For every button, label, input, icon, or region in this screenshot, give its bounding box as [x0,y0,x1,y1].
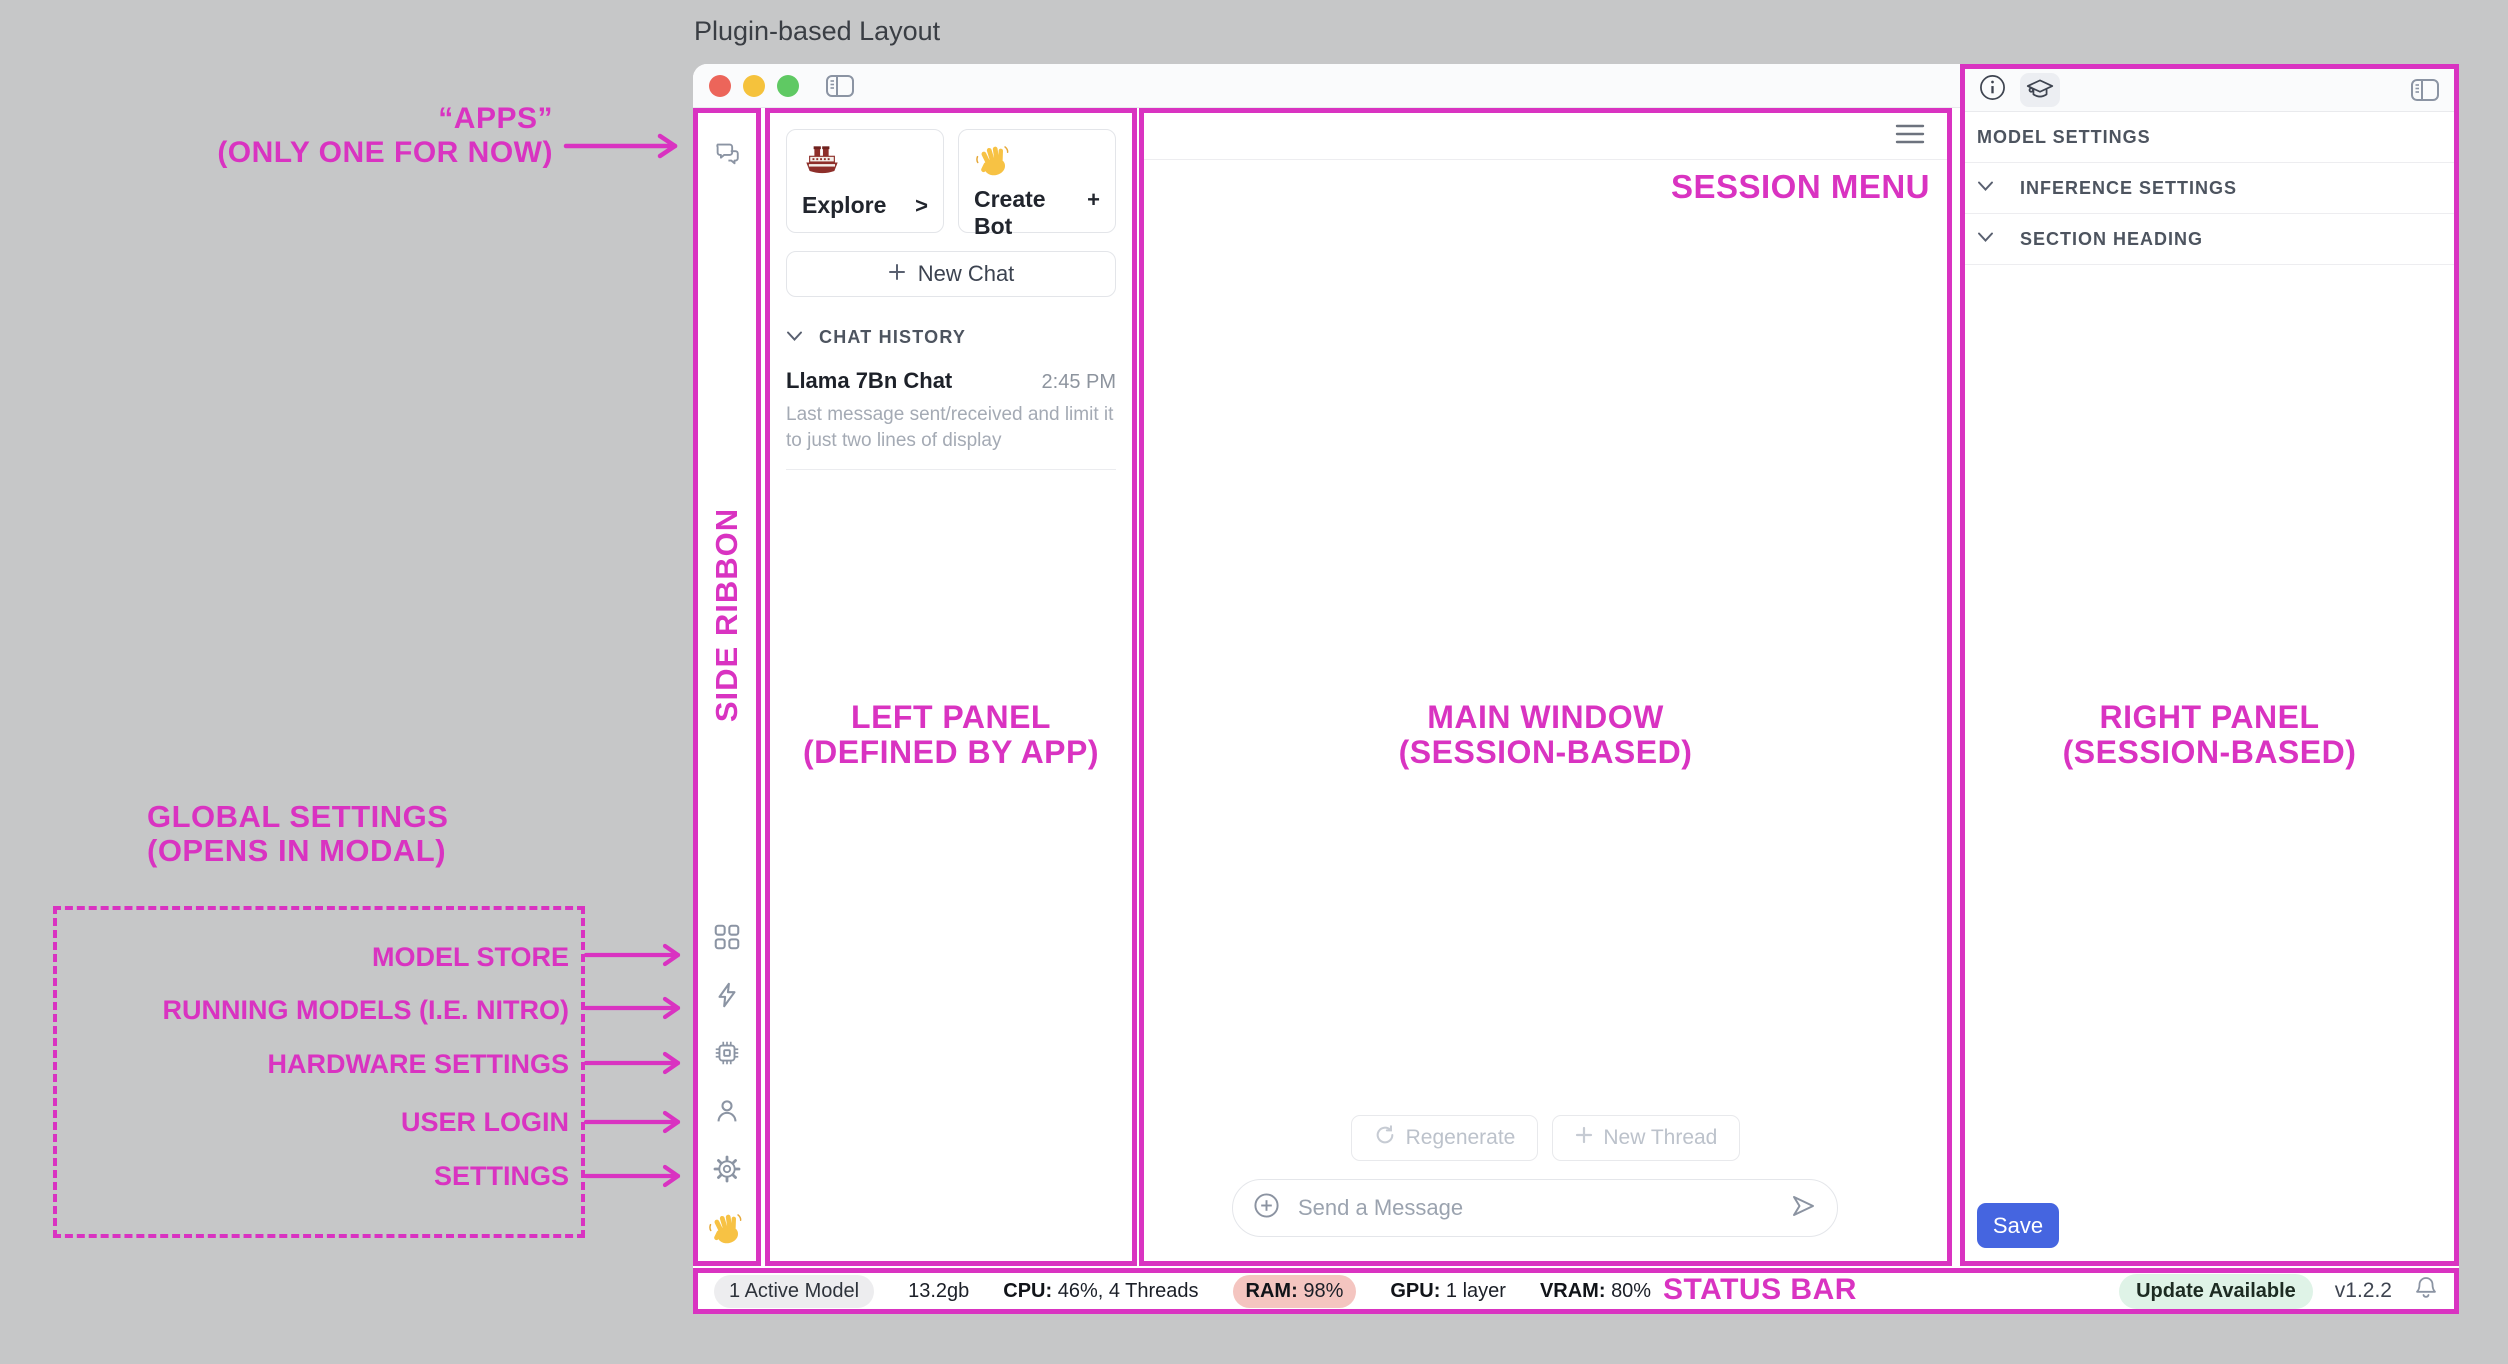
create-bot-card[interactable]: Create Bot + [958,129,1116,233]
chevron-down-icon [1977,230,1994,248]
bell-icon[interactable] [2414,1275,2438,1307]
chat-app-icon[interactable] [711,137,743,169]
explore-card[interactable]: Explore > [786,129,944,233]
explore-card-label: Explore [802,192,886,219]
create-bot-card-plus: + [1087,187,1100,213]
annotation-main-window: MAIN WINDOW (SESSION-BASED) [1139,700,1952,770]
cpu-usage: CPU: 46%, 4 Threads [1003,1280,1198,1303]
annotation-right-panel: RIGHT PANEL (SESSION-BASED) [1960,700,2459,770]
traffic-lights [709,75,799,97]
annotation-running-models: RUNNING MODELS (I.E. NITRO) [53,994,569,1026]
mockup-canvas: Plugin-based Layout [0,0,2508,1364]
memory-usage: 13.2gb [908,1280,969,1303]
explore-card-chevron: > [915,193,928,219]
active-model-badge[interactable]: 1 Active Model [714,1275,874,1308]
annotation-left-panel: LEFT PANEL (DEFINED BY APP) [765,700,1137,770]
annotation-arrow-model-store [584,941,688,969]
annotation-settings: SETTINGS [53,1160,569,1192]
annotation-global-settings: GLOBAL SETTINGS (OPENS IN MODAL) [147,800,448,868]
model-settings-label: MODEL SETTINGS [1977,127,2151,148]
ram-usage-badge: RAM: 98% [1233,1275,1357,1308]
chevron-down-icon [786,329,803,347]
annotation-side-ribbon: SIDE RIBBON [709,508,745,722]
chat-item-time: 2:45 PM [1042,371,1116,394]
wave-emoji-icon [974,143,1100,186]
send-icon[interactable] [1789,1192,1817,1225]
new-chat-label: New Chat [918,261,1015,287]
annotation-arrow-user-login [584,1108,688,1136]
message-composer [1232,1179,1838,1237]
save-button[interactable]: Save [1977,1203,2059,1248]
new-thread-button[interactable]: New Thread [1552,1115,1740,1161]
chat-history-item[interactable]: Llama 7Bn Chat 2:45 PM Last message sent… [786,368,1116,470]
create-bot-card-label: Create Bot [974,186,1087,240]
message-input[interactable] [1296,1194,1773,1222]
chat-history-title: CHAT HISTORY [819,327,966,348]
main-window-header [1144,113,1947,160]
annotation-status-bar: STATUS BAR [1560,1273,1960,1307]
new-chat-button[interactable]: New Chat [786,251,1116,297]
annotation-model-store: MODEL STORE [53,941,569,973]
annotation-arrow-running-models [584,994,688,1022]
left-panel: Explore > [765,108,1137,1266]
attach-plus-icon[interactable] [1253,1192,1280,1224]
annotation-hardware-settings: HARDWARE SETTINGS [53,1048,569,1080]
hardware-settings-icon[interactable] [711,1037,743,1069]
user-login-icon[interactable] [711,1095,743,1127]
model-store-icon[interactable] [711,921,743,953]
divider [786,469,1116,470]
annotation-arrow-apps [563,130,685,162]
new-thread-label: New Thread [1603,1126,1717,1150]
main-window: Regenerate New Thread [1139,108,1952,1266]
model-settings-tab[interactable] [2020,73,2060,107]
right-panel-header [1965,69,2454,112]
ribbon-global-icons [708,921,746,1261]
annotation-arrow-hardware [584,1049,688,1077]
plus-icon [888,261,906,287]
sidebar-toggle-icon[interactable] [825,74,855,98]
annotation-apps: “APPS” (ONLY ONE FOR NOW) [150,102,553,170]
chat-message-area [1144,160,1947,1115]
thread-actions: Regenerate New Thread [1144,1115,1947,1161]
zoom-window-button[interactable] [777,75,799,97]
app-window: Explore > [693,64,2459,1314]
model-settings-heading: MODEL SETTINGS [1965,112,2454,163]
app-version: v1.2.2 [2335,1279,2392,1303]
gpu-usage: GPU: 1 layer [1390,1280,1506,1303]
regenerate-label: Regenerate [1406,1126,1516,1150]
chat-item-preview: Last message sent/received and limit it … [786,402,1116,453]
annotation-arrow-settings [584,1162,688,1190]
settings-gear-icon[interactable] [711,1153,743,1185]
inference-settings-section[interactable]: INFERENCE SETTINGS [1965,163,2454,214]
update-available-badge[interactable]: Update Available [2119,1274,2313,1309]
right-panel: MODEL SETTINGS INFERENCE SETTINGS SECTIO… [1960,64,2459,1266]
chevron-down-icon [1977,179,1994,197]
chat-history-header[interactable]: CHAT HISTORY [786,327,1116,348]
page-title: Plugin-based Layout [694,16,940,47]
app-cards: Explore > [786,129,1116,233]
hamburger-menu-icon[interactable] [1895,123,1925,150]
section-heading-section[interactable]: SECTION HEADING [1965,214,2454,265]
running-models-icon[interactable] [711,979,743,1011]
regenerate-button[interactable]: Regenerate [1351,1115,1539,1161]
chat-item-title: Llama 7Bn Chat [786,368,952,394]
panel-toggle-icon[interactable] [2410,78,2440,102]
refresh-icon [1374,1124,1396,1152]
ship-emoji-icon [802,143,928,186]
annotation-user-login: USER LOGIN [53,1106,569,1138]
section-heading-label: SECTION HEADING [2020,229,2203,250]
close-window-button[interactable] [709,75,731,97]
minimize-window-button[interactable] [743,75,765,97]
plus-icon [1575,1126,1593,1150]
annotation-session-menu: SESSION MENU [1530,168,1930,206]
inference-settings-label: INFERENCE SETTINGS [2020,178,2237,199]
info-icon[interactable] [1979,74,2006,106]
wave-hand-icon[interactable] [708,1211,746,1249]
